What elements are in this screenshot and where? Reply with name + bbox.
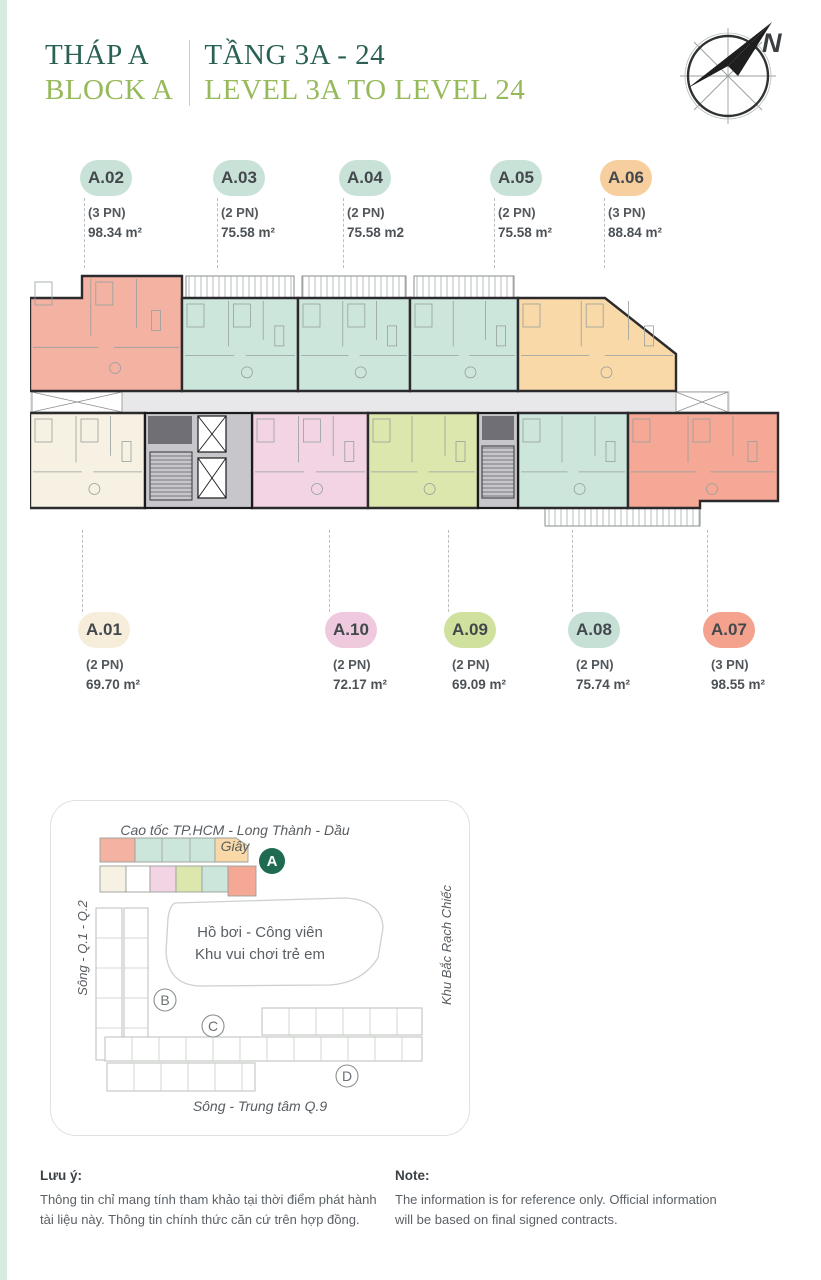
unit-label-A.01: A.01(2 PN)69.70 m² bbox=[78, 612, 174, 692]
plan-unit-A.01 bbox=[30, 413, 145, 508]
unit-area-A.04: 75.58 m2 bbox=[339, 225, 435, 240]
leader-line-A.09 bbox=[448, 530, 449, 612]
block-marker-label: C bbox=[208, 1018, 218, 1034]
unit-pill-A.03: A.03 bbox=[213, 160, 265, 196]
level-range-en: LEVEL 3A TO LEVEL 24 bbox=[204, 73, 525, 108]
unit-bedrooms-A.02: (3 PN) bbox=[80, 205, 176, 220]
service-core bbox=[145, 413, 252, 508]
note-vi-body: Thông tin chỉ mang tính tham khảo tại th… bbox=[40, 1190, 390, 1229]
stairs bbox=[150, 452, 192, 500]
block-marker-B: B bbox=[154, 989, 176, 1011]
unit-bedrooms-A.06: (3 PN) bbox=[600, 205, 696, 220]
unit-pill-A.02: A.02 bbox=[80, 160, 132, 196]
note-en-title: Note: bbox=[395, 1168, 730, 1183]
unit-bedrooms-A.05: (2 PN) bbox=[490, 205, 586, 220]
block-marker-C: C bbox=[202, 1015, 224, 1037]
unit-label-A.06: A.06(3 PN)88.84 m² bbox=[600, 160, 696, 240]
floor-plan bbox=[30, 266, 790, 538]
pool-park-line1: Hồ bơi - Công viên bbox=[160, 922, 360, 944]
neighbor-block bbox=[124, 908, 148, 1044]
block-title-vi: THÁP A bbox=[45, 38, 173, 73]
unit-area-A.06: 88.84 m² bbox=[600, 225, 696, 240]
plan-unit-A.09 bbox=[368, 413, 478, 508]
unit-pill-A.05: A.05 bbox=[490, 160, 542, 196]
unit-pill-A.06: A.06 bbox=[600, 160, 652, 196]
brochure-page: THÁP A BLOCK A TẦNG 3A - 24 LEVEL 3A TO … bbox=[0, 0, 821, 1280]
page-edge-strip bbox=[0, 0, 7, 1280]
unit-pill-A.07: A.07 bbox=[703, 612, 755, 648]
block-a-badge-label: A bbox=[267, 853, 278, 870]
road-label-top: Cao tốc TP.HCM - Long Thành - Dầu Giây bbox=[105, 822, 365, 854]
area-label-right: Khu Bắc Rạch Chiếc bbox=[439, 870, 455, 1020]
unit-area-A.07: 98.55 m² bbox=[703, 677, 799, 692]
pool-park-line2: Khu vui chơi trẻ em bbox=[160, 944, 360, 966]
unit-label-A.04: A.04(2 PN)75.58 m2 bbox=[339, 160, 435, 240]
plan-unit-A.04 bbox=[298, 298, 410, 391]
compass-north-label: N bbox=[762, 28, 782, 58]
unit-area-A.03: 75.58 m² bbox=[213, 225, 309, 240]
corridor bbox=[30, 391, 730, 413]
unit-pill-A.01: A.01 bbox=[78, 612, 130, 648]
plan-unit-A.06 bbox=[518, 298, 676, 391]
note-en: Note: The information is for reference o… bbox=[395, 1168, 730, 1229]
unit-bedrooms-A.09: (2 PN) bbox=[444, 657, 540, 672]
unit-label-A.10: A.10(2 PN)72.17 m² bbox=[325, 612, 421, 692]
road-label-bottom: Sông - Trung tâm Q.9 bbox=[150, 1098, 370, 1114]
unit-area-A.01: 69.70 m² bbox=[78, 677, 174, 692]
unit-bedrooms-A.10: (2 PN) bbox=[325, 657, 421, 672]
unit-bedrooms-A.01: (2 PN) bbox=[78, 657, 174, 672]
unit-label-A.03: A.03(2 PN)75.58 m² bbox=[213, 160, 309, 240]
unit-label-A.05: A.05(2 PN)75.58 m² bbox=[490, 160, 586, 240]
note-vi: Lưu ý: Thông tin chỉ mang tính tham khảo… bbox=[40, 1168, 390, 1229]
unit-area-A.05: 75.58 m² bbox=[490, 225, 586, 240]
plan-unit-A.05 bbox=[410, 298, 518, 391]
unit-pill-A.04: A.04 bbox=[339, 160, 391, 196]
leader-line-A.10 bbox=[329, 530, 330, 612]
unit-bedrooms-A.04: (2 PN) bbox=[339, 205, 435, 220]
unit-bedrooms-A.03: (2 PN) bbox=[213, 205, 309, 220]
plan-unit-A.10 bbox=[252, 413, 368, 508]
leader-line-A.08 bbox=[572, 530, 573, 612]
header: THÁP A BLOCK A TẦNG 3A - 24 LEVEL 3A TO … bbox=[45, 38, 525, 108]
block-title: THÁP A BLOCK A bbox=[45, 38, 173, 108]
plan-unit-A.03 bbox=[182, 298, 298, 391]
unit-bedrooms-A.07: (3 PN) bbox=[703, 657, 799, 672]
unit-label-A.02: A.02(3 PN)98.34 m² bbox=[80, 160, 176, 240]
block-title-en: BLOCK A bbox=[45, 73, 173, 108]
neighbor-block bbox=[105, 1037, 422, 1061]
mini-block-a-unit bbox=[228, 866, 256, 896]
mini-block-a-unit bbox=[126, 866, 150, 892]
compass-icon: N bbox=[676, 8, 788, 128]
plan-unit-A.07 bbox=[628, 413, 778, 508]
leader-line-A.07 bbox=[707, 530, 708, 612]
service-core bbox=[478, 413, 518, 508]
unit-area-A.09: 69.09 m² bbox=[444, 677, 540, 692]
pool-park-label: Hồ bơi - Công viên Khu vui chơi trẻ em bbox=[160, 922, 360, 966]
neighbor-block bbox=[107, 1063, 255, 1091]
unit-area-A.08: 75.74 m² bbox=[568, 677, 664, 692]
mini-block-a-unit bbox=[202, 866, 228, 892]
level-range: TẦNG 3A - 24 LEVEL 3A TO LEVEL 24 bbox=[204, 38, 525, 108]
unit-area-A.10: 72.17 m² bbox=[325, 677, 421, 692]
unit-area-A.02: 98.34 m² bbox=[80, 225, 176, 240]
block-marker-label: D bbox=[342, 1068, 352, 1084]
plan-unit-A.02 bbox=[30, 276, 182, 391]
block-marker-label: B bbox=[160, 992, 169, 1008]
stairs bbox=[482, 446, 514, 498]
mini-block-a-unit bbox=[100, 866, 126, 892]
header-divider bbox=[189, 40, 190, 106]
unit-label-A.07: A.07(3 PN)98.55 m² bbox=[703, 612, 799, 692]
mini-block-a-unit bbox=[176, 866, 202, 892]
level-range-vi: TẦNG 3A - 24 bbox=[204, 38, 525, 73]
unit-label-A.09: A.09(2 PN)69.09 m² bbox=[444, 612, 540, 692]
unit-pill-A.09: A.09 bbox=[444, 612, 496, 648]
neighbor-block bbox=[262, 1008, 422, 1035]
mini-block-a-unit bbox=[150, 866, 176, 892]
note-en-body: The information is for reference only. O… bbox=[395, 1190, 730, 1229]
leader-line-A.01 bbox=[82, 530, 83, 612]
unit-pill-A.10: A.10 bbox=[325, 612, 377, 648]
plan-unit-A.08 bbox=[518, 413, 628, 508]
river-label-left: Sông - Q.1 - Q.2 bbox=[75, 883, 91, 1013]
note-vi-title: Lưu ý: bbox=[40, 1168, 390, 1183]
unit-label-A.08: A.08(2 PN)75.74 m² bbox=[568, 612, 664, 692]
unit-bedrooms-A.08: (2 PN) bbox=[568, 657, 664, 672]
block-marker-D: D bbox=[336, 1065, 358, 1087]
unit-pill-A.08: A.08 bbox=[568, 612, 620, 648]
